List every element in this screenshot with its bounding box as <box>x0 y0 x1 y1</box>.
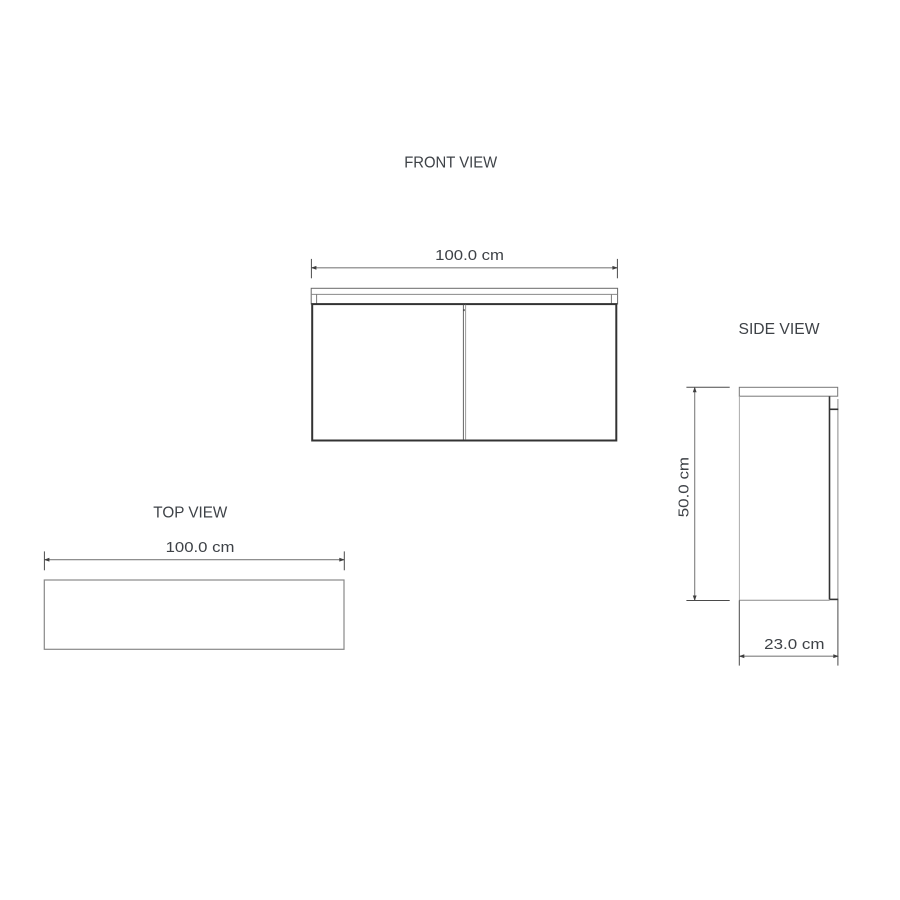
svg-text:100.0 cm: 100.0 cm <box>435 247 504 264</box>
svg-text:FRONT VIEW: FRONT VIEW <box>404 155 498 172</box>
svg-text:SIDE VIEW: SIDE VIEW <box>739 321 821 338</box>
svg-text:100.0 cm: 100.0 cm <box>166 539 235 556</box>
svg-text:23.0 cm: 23.0 cm <box>764 636 824 653</box>
svg-text:50.0 cm: 50.0 cm <box>676 457 693 517</box>
svg-text:TOP VIEW: TOP VIEW <box>153 505 228 522</box>
